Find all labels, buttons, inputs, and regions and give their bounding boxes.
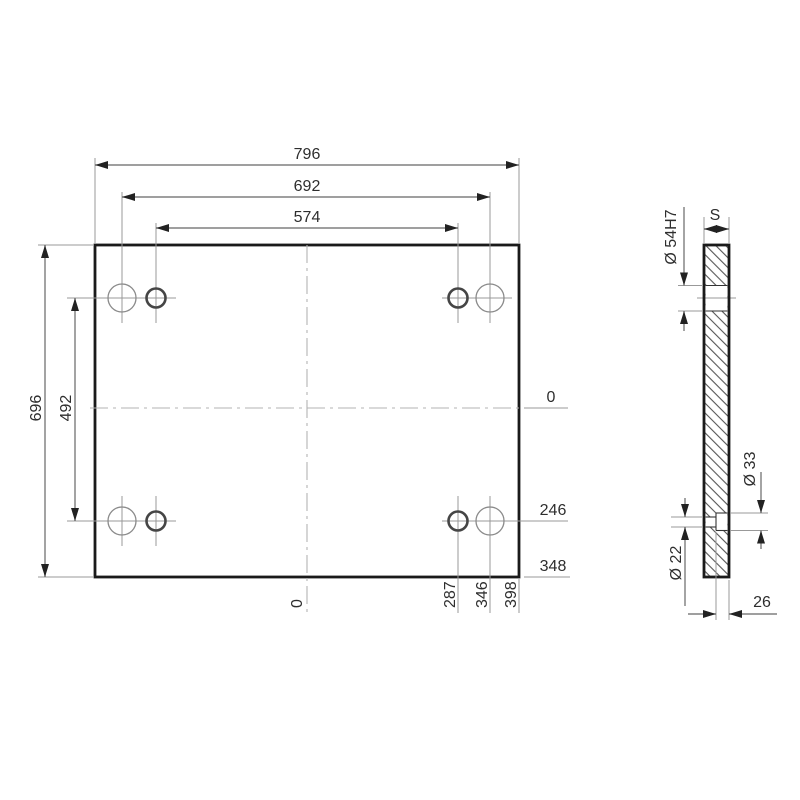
depth-label: 26 (753, 594, 771, 611)
ordinate-label-0-bottom: 0 (289, 599, 306, 608)
dim-label-696: 696 (28, 395, 45, 422)
through-hole-diameter-label: Ø 22 (668, 546, 685, 581)
ordinate-label-398: 398 (503, 581, 520, 608)
hole-centerlines (67, 192, 568, 613)
dim-label-692: 692 (294, 178, 321, 195)
bore-holes (108, 284, 504, 535)
counterbore-section (716, 513, 727, 531)
ordinate-label-348: 348 (540, 558, 567, 575)
ordinate-label-0-right: 0 (547, 389, 556, 406)
ordinate-label-246: 246 (540, 502, 567, 519)
bore-diameter-label: Ø 54H7 (663, 209, 680, 264)
thickness-label: S (710, 207, 721, 224)
ordinate-label-287: 287 (442, 581, 459, 608)
dim-label-574: 574 (294, 209, 321, 226)
through-hole-section (706, 517, 716, 527)
dimension-lines (45, 165, 519, 577)
counterbore-diameter-label: Ø 33 (742, 452, 759, 487)
side-view: S Ø 54H7 Ø 33 Ø 22 (663, 207, 777, 620)
front-view: 796 692 574 696 492 0 246 348 0 287 346 … (28, 146, 570, 613)
dim-label-492: 492 (58, 395, 75, 422)
ordinate-label-346: 346 (474, 581, 491, 608)
technical-drawing-page: 796 692 574 696 492 0 246 348 0 287 346 … (0, 0, 800, 800)
drawing-svg: 796 692 574 696 492 0 246 348 0 287 346 … (0, 0, 800, 800)
dim-label-796: 796 (294, 146, 321, 163)
bore-dimension (678, 207, 702, 331)
